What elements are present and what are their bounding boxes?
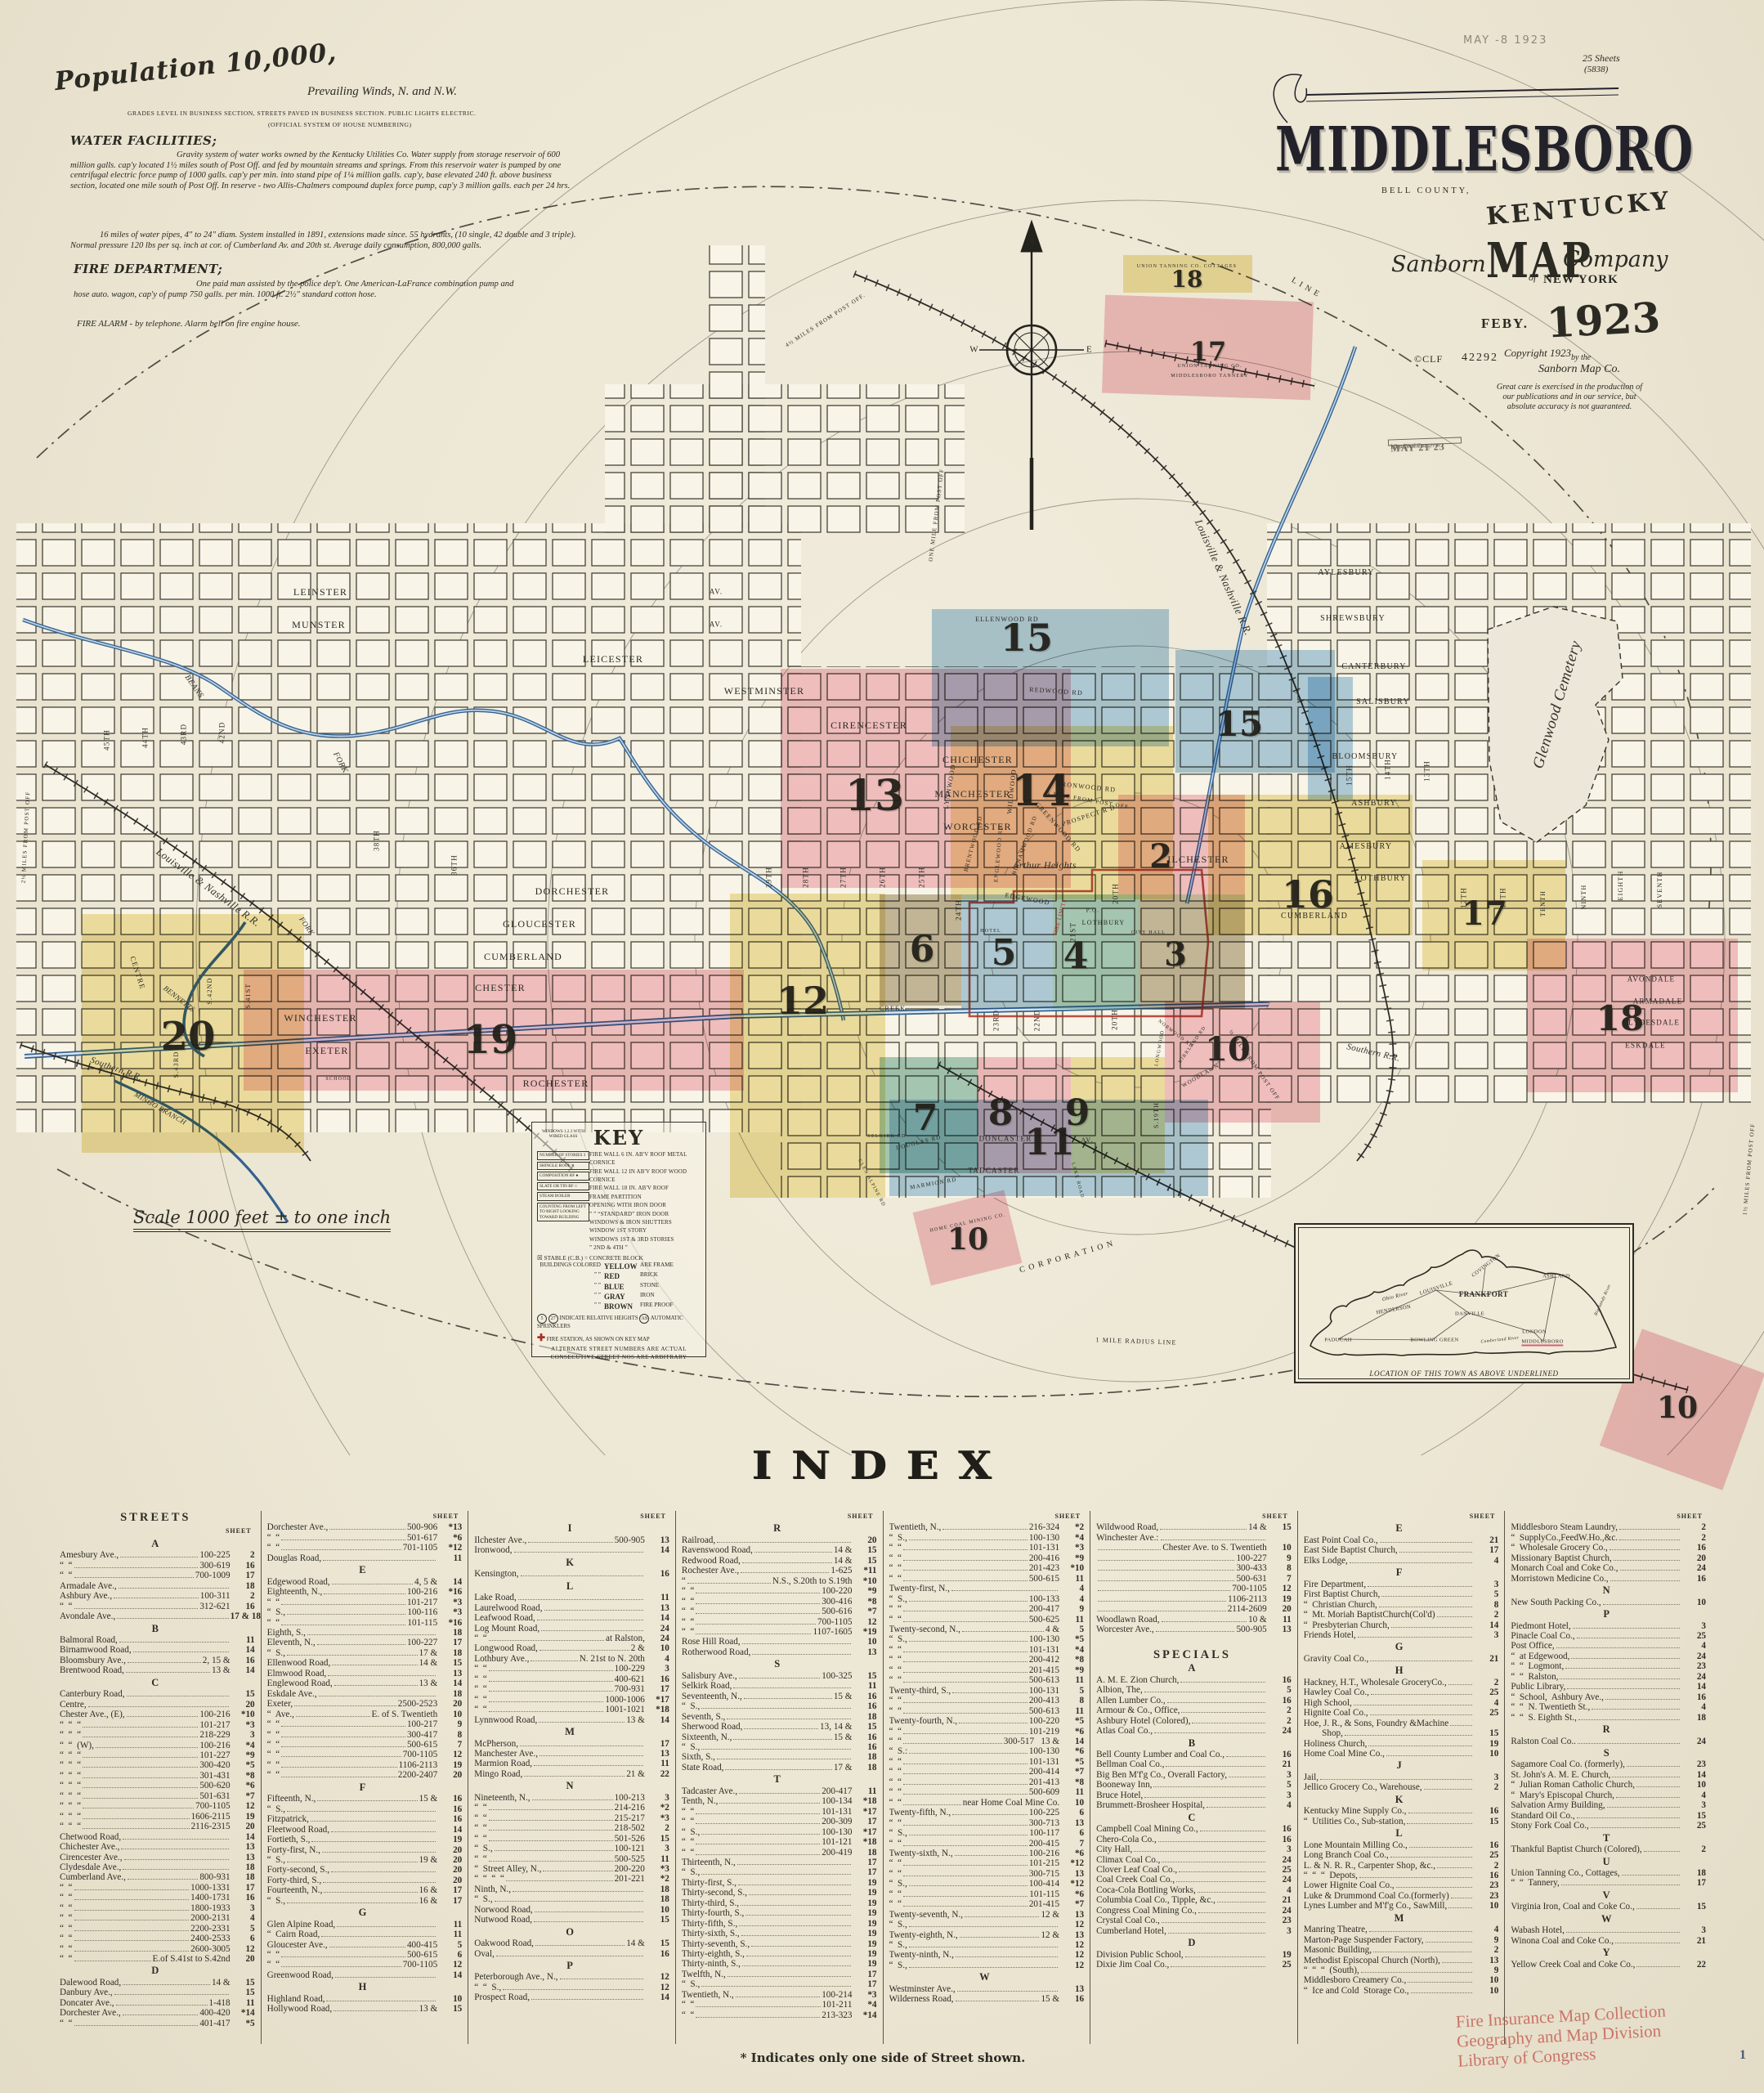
leader-dots: [903, 1652, 1028, 1652]
leader-dots: [903, 1682, 1028, 1683]
index-row: “ S., 100-130 *5: [889, 1634, 1085, 1644]
leader-dots: [532, 1799, 613, 1800]
leader-dots: [1156, 1631, 1235, 1632]
leader-dots: [281, 1549, 401, 1550]
key-line: OPENING WITH IRON DOOR: [589, 1202, 701, 1210]
index-row: “ “ 500-616 *7: [682, 1607, 877, 1616]
leader-dots: [1198, 1892, 1265, 1893]
leader-dots: [1350, 1562, 1473, 1563]
index-row: “ S., 18: [474, 1894, 669, 1904]
index-row: East Side Baptist Church, 17: [1304, 1545, 1499, 1555]
index-row: Yellow Creek Coal and Coke Co., 22: [1511, 1960, 1706, 1970]
leader-dots: [696, 1593, 820, 1593]
leader-dots: [518, 1599, 643, 1600]
water-facilities-body: Gravity system of water works owned by t…: [70, 150, 577, 191]
index-row: D: [60, 1965, 255, 1976]
leader-dots: [1345, 1735, 1472, 1736]
index-column-rows: SHEET I Ilchester Ave., 500-905: [474, 1511, 669, 2003]
leader-dots: [1411, 1992, 1473, 1993]
fire-station-cross-icon: ✚: [537, 1332, 545, 1343]
leader-dots: [1620, 1570, 1681, 1571]
leader-dots: [1622, 1875, 1680, 1876]
leader-dots: [741, 1935, 851, 1936]
key-line: ” 2ND & 4TH ”: [589, 1244, 701, 1253]
leader-dots: [119, 1588, 229, 1589]
leader-dots: [1371, 1694, 1472, 1695]
grades-note: GRADES LEVEL IN BUSINESS SECTION, STREET…: [128, 110, 476, 117]
index-column-rows: SHEET Wildwood Road, 14 & 15 Winchester …: [1096, 1511, 1292, 1970]
index-column-rows: SHEET R Railroad, 20: [682, 1511, 877, 2020]
inset-city-label: DANVILLE: [1455, 1311, 1484, 1317]
index-row: Thirty-first, S., 19: [682, 1878, 877, 1888]
leader-dots: [909, 1753, 1028, 1754]
leader-dots: [1614, 1560, 1680, 1561]
fire-station-label: FIRE STATION, AS SHOWN ON KEY MAP: [547, 1337, 650, 1342]
leader-dots: [1592, 1709, 1680, 1710]
leader-dots: [754, 1552, 832, 1553]
index-row: 700-1105 12: [1096, 1584, 1292, 1593]
leader-dots: [1381, 1596, 1472, 1597]
index-row: “ “ 2000-2131 4: [60, 1913, 255, 1923]
index-row: “ “ at Ralston, 24: [474, 1634, 669, 1643]
index-row: A: [1096, 1663, 1292, 1674]
leader-dots: [489, 1820, 613, 1821]
sheet-page-number: 1: [1739, 2048, 1746, 2063]
index-row: Exeter, 2500-2523 20: [267, 1699, 463, 1709]
index-row: Luke & Drummond Coal Co.(formerly) 23: [1304, 1891, 1499, 1901]
leader-dots: [749, 1894, 850, 1895]
index-row: “ Street Alley, N., 200-220 *3: [474, 1864, 669, 1874]
index-row: Coca-Cola Bottling Works, 4: [1096, 1885, 1292, 1895]
index-row: Coal Creek Coal Co., 24: [1096, 1875, 1292, 1885]
index-row: “ “ 1000-1331 17: [60, 1883, 255, 1893]
index-row: Manchester Ave., 13: [474, 1749, 669, 1759]
leader-dots: [744, 1728, 818, 1729]
index-row: “ “ 215-217 *3: [474, 1813, 669, 1823]
index-row: Fortieth, S., 19: [267, 1835, 463, 1844]
leader-dots: [1158, 1841, 1265, 1842]
index-row: “ “ 500-615 7: [267, 1740, 463, 1750]
leader-dots: [1615, 1943, 1680, 1943]
district-sheet-number: 14: [1012, 770, 1071, 813]
leader-dots: [696, 2017, 820, 2018]
index-row: Lower Hignite Coal Co., 23: [1304, 1880, 1499, 1890]
key-line: FIRE WALL 12 IN AB'V ROOF WOOD CORNICE: [589, 1168, 701, 1185]
leader-dots: [539, 1650, 629, 1651]
index-row: City Hall, 3: [1096, 1844, 1292, 1854]
leader-dots: [296, 1716, 370, 1717]
leader-dots: [503, 1989, 643, 1990]
index-row: Congress Coal Mining Co., 24: [1096, 1906, 1292, 1916]
index-row: Gloucester Ave., 400-415 5: [267, 1940, 463, 1950]
index-row: “ “ 2600-3005 12: [60, 1944, 255, 1954]
index-row: Twenty-ninth, N., 12: [889, 1950, 1085, 1960]
edition-month: FEBY.: [1481, 316, 1529, 332]
leader-dots: [1636, 1908, 1680, 1909]
leader-dots: [489, 1830, 613, 1831]
leader-dots: [903, 1580, 1028, 1581]
index-row: P: [1511, 1609, 1706, 1620]
index-row: “ “ 501-617 *6: [267, 1533, 463, 1543]
index-row: B: [1096, 1738, 1292, 1749]
index-row: N: [474, 1781, 669, 1791]
leader-dots: [701, 1708, 850, 1709]
leader-dots: [83, 1798, 198, 1799]
index-row: New South Packing Co., 10: [1511, 1598, 1706, 1607]
index-row: Doncater Ave., 1-418 11: [60, 1998, 255, 2008]
index-row: Hollywood Road, 13 & 15: [267, 2004, 463, 2014]
leader-dots: [324, 1892, 417, 1893]
leader-dots: [287, 1614, 405, 1615]
index-row: Peterborough Ave., N., 12: [474, 1972, 669, 1982]
index-column-rows: STREETS SHEET A: [60, 1513, 255, 2028]
leader-dots: [1577, 1638, 1680, 1638]
leader-dots: [1451, 1898, 1473, 1898]
leader-dots: [1198, 1912, 1265, 1913]
index-row: G: [1304, 1642, 1499, 1652]
file-number: 42292: [1462, 352, 1498, 365]
district-sheet-number: 13: [845, 775, 904, 818]
leader-dots: [294, 1705, 396, 1706]
index-row: “ “ 101-115 *6: [889, 1889, 1085, 1899]
leader-dots: [903, 1611, 1028, 1611]
district-sheet-number: 7: [913, 1100, 938, 1136]
index-row: Long Branch Coal Co., 25: [1304, 1850, 1499, 1860]
leader-dots: [489, 1681, 613, 1682]
leader-dots: [539, 1755, 643, 1756]
county-label: BELL COUNTY,: [1381, 186, 1471, 195]
index-column: SHEET Dorchester Ave., 500-906 *13 “ “ 5…: [261, 1511, 468, 2044]
leader-dots: [123, 1839, 228, 1840]
leader-dots: [535, 1945, 625, 1946]
index-row: Oval, 16: [474, 1949, 669, 1959]
leader-dots: [560, 1979, 643, 1979]
index-row: “ S.: 100-130 *6: [889, 1746, 1085, 1756]
leader-dots: [74, 1608, 199, 1609]
index-row: “ S., 17: [682, 1979, 877, 1989]
leader-dots: [903, 1621, 1028, 1622]
index-row: 100-227 9: [1096, 1553, 1292, 1563]
leader-dots: [489, 1809, 613, 1810]
index-row: “ “ N. Twentieth St., 4: [1511, 1702, 1706, 1712]
index-row: “ “ 218-502 2: [474, 1823, 669, 1833]
key-heights-line: 5 27 INDICATE RELATIVE HEIGHTS AS AUTOMA…: [537, 1314, 701, 1329]
key-color-row: ” ” RED BRICK: [537, 1271, 701, 1281]
district-sheet-number: 12: [777, 982, 829, 1020]
leader-dots: [281, 1767, 396, 1768]
index-row: Marmion Road, 11: [474, 1759, 669, 1768]
index-column-rows: SHEET Twentieth, N., 216-324 *2 “ S., 10…: [889, 1511, 1085, 2005]
leader-dots: [909, 1926, 1058, 1927]
index-column-rows: SHEET Dorchester Ave., 500-906 *13 “ “ 5…: [267, 1511, 463, 2015]
leader-dots: [74, 1910, 190, 1911]
leader-dots: [727, 1719, 850, 1719]
index-row: Redwood Road, 14 & 15: [682, 1556, 877, 1566]
key-color-row: ” ” BROWN FIRE PROOF: [537, 1302, 701, 1311]
index-row: Armour & Co., Office, 2: [1096, 1705, 1292, 1715]
leader-dots: [513, 1891, 643, 1892]
leader-dots: [520, 1746, 643, 1746]
index-row: Sherwood Road, 13, 14 & 15: [682, 1722, 877, 1732]
leader-dots: [281, 1966, 401, 1967]
index-row: “ “ “ 1606-2115 19: [60, 1812, 255, 1822]
index-row: “ “ E.of S.41st to S.42nd 20: [60, 1954, 255, 1964]
leader-dots: [745, 1915, 850, 1916]
index-row: Amesbury Ave., 100-225 2: [60, 1550, 255, 1560]
leader-dots: [903, 1702, 1028, 1703]
leader-dots: [83, 1767, 198, 1768]
leader-dots: [1573, 1628, 1680, 1629]
index-row: Cumberland Hotel, 3: [1096, 1926, 1292, 1936]
leader-dots: [1153, 1786, 1265, 1787]
district-sheet-number: 20: [161, 1017, 216, 1056]
scale-note: Scale 1000 feet ± to one inch: [133, 1208, 391, 1232]
index-row: Canterbury Road, 15: [60, 1689, 255, 1699]
leader-dots: [119, 1642, 229, 1643]
leader-dots: [489, 1861, 613, 1862]
leader-dots: [281, 1726, 405, 1727]
index-row: “ S., 17: [682, 1867, 877, 1877]
leader-dots: [281, 1956, 405, 1957]
key-symbol-item: SHINGLE ROOF ✕: [537, 1162, 589, 1171]
index-row: “ S., 100-133 4: [889, 1594, 1085, 1604]
index-row: Thirty-ninth, S., 19: [682, 1959, 877, 1969]
leader-dots: [1437, 1616, 1473, 1617]
leader-dots: [323, 1560, 436, 1561]
index-row: Eleventh, N., 100-227 17: [267, 1638, 463, 1647]
index-row: Dorchester Ave., 500-906 *13: [267, 1522, 463, 1532]
leader-dots: [1390, 1857, 1473, 1858]
index-row: Ninth, N., 18: [474, 1885, 669, 1894]
index-row: “ “ 400-621 16: [474, 1674, 669, 1684]
leader-dots: [909, 1539, 1028, 1540]
index-row: Chester Ave. to S. Twentieth 10: [1096, 1543, 1292, 1553]
index-row: Worcester Ave., 500-905 13: [1096, 1625, 1292, 1634]
index-row: Forty-first, N., 20: [267, 1845, 463, 1855]
index-row: Hackney, H.T., Wholesale GroceryCo., 2: [1304, 1678, 1499, 1687]
index-row: Twentieth, N., 100-214 *3: [682, 1990, 877, 2000]
leader-dots: [719, 1803, 820, 1804]
leader-dots: [751, 1946, 850, 1947]
leader-dots: [701, 1834, 820, 1835]
leader-dots: [1450, 1725, 1472, 1726]
district-sheet-number: 10: [1657, 1393, 1698, 1423]
inset-city-label: PADUCAH: [1324, 1338, 1352, 1343]
leader-dots: [1359, 1877, 1472, 1878]
index-row: Thirty-third, S., 19: [682, 1898, 877, 1908]
index-row: Jellico Grocery Co., Warehouse, 2: [1304, 1782, 1499, 1792]
leader-dots: [1180, 1682, 1265, 1683]
index-row: “ “ 700-1105 12: [682, 1617, 877, 1627]
height-symbol-27: 27: [548, 1314, 558, 1324]
index-row: “ Cairn Road, 11: [267, 1929, 463, 1939]
leader-dots: [733, 1687, 850, 1688]
index-column: SHEET I Ilchester Ave., 500-905: [468, 1511, 675, 2044]
index-row: “ “ 200-417 9: [889, 1604, 1085, 1614]
leader-dots: [1162, 1621, 1247, 1622]
leader-dots: [746, 1956, 851, 1956]
leader-dots: [1407, 1823, 1472, 1824]
leader-dots: [281, 1756, 401, 1757]
index-row: Thirty-second, S., 19: [682, 1888, 877, 1898]
key-stable-line: ☒ STABLE (C.B.) = CONCRETE BLOCK: [537, 1254, 701, 1262]
index-row: Winona Coal and Coke Co., 21: [1511, 1936, 1706, 1946]
leader-dots: [1217, 1902, 1265, 1903]
index-row: “ Utilities Co., Sub-station, 15: [1304, 1817, 1499, 1826]
leader-dots: [952, 1692, 1028, 1693]
index-row: Nineteenth, N., 100-213 3: [474, 1793, 669, 1803]
leader-dots: [281, 1737, 405, 1737]
index-row: Division Public School, 19: [1096, 1950, 1292, 1960]
index-row: SHEET: [474, 1511, 669, 1522]
index-row: Longwood Road, 2 & 10: [474, 1643, 669, 1653]
index-row: “ “ 101-131 *3: [889, 1543, 1085, 1553]
leader-dots: [696, 2006, 820, 2007]
key-fire-station-line: ✚ FIRE STATION, AS SHOWN ON KEY MAP: [537, 1332, 701, 1344]
leader-dots: [74, 1567, 199, 1568]
index-row: Thirty-seventh, S., 19: [682, 1939, 877, 1949]
leader-dots: [742, 1965, 851, 1966]
index-footnote: * Indicates only one side of Street show…: [621, 2050, 1144, 2065]
leader-dots: [909, 1601, 1028, 1602]
index-row: “ “ 300-713 13: [889, 1818, 1085, 1828]
leader-dots: [1361, 1972, 1473, 1973]
index-row: “ “ 2400-2533 6: [60, 1934, 255, 1943]
inset-city-label: BOWLING GREEN: [1410, 1338, 1458, 1343]
index-row: Stony Fork Coal Co., 25: [1511, 1821, 1706, 1831]
index-row: C: [60, 1678, 255, 1688]
index-row: “ S., 17 & 18: [267, 1648, 463, 1658]
leader-dots: [1181, 1712, 1265, 1713]
index-row: “ “ 500-625 11: [889, 1615, 1085, 1625]
leader-dots: [903, 1896, 1028, 1897]
index-row: “ “ Logmont, 23: [1511, 1661, 1706, 1671]
leader-dots: [123, 1984, 210, 1985]
leader-dots: [1160, 1529, 1247, 1530]
index-row: “ “ “ 101-217 *3: [60, 1720, 255, 1730]
index-row: “ Presbyterian Church, 14: [1304, 1620, 1499, 1630]
leader-dots: [956, 1956, 1058, 1957]
index-row: Englewood Road, 13 & 14: [267, 1678, 463, 1688]
leader-dots: [701, 1986, 850, 1987]
leader-dots: [489, 1640, 604, 1641]
leader-dots: [127, 1696, 229, 1696]
index-row: “ Ave., E. of S. Twentieth 10: [267, 1710, 463, 1719]
key-symbol-item: NUMBER OF STORIES 3: [537, 1151, 589, 1160]
leader-dots: [956, 2001, 1040, 2001]
district-sheet-number: 2: [1149, 840, 1172, 873]
leader-dots: [1161, 1539, 1265, 1540]
index-row: Twenty-fifth, N., 100-225 6: [889, 1808, 1085, 1817]
index-row: Piedmont Hotel, 3: [1511, 1621, 1706, 1631]
leader-dots: [535, 1911, 643, 1912]
index-row: Wabash Hotel, 3: [1511, 1925, 1706, 1935]
index-row: A. M. E. Zion Church, 16: [1096, 1675, 1292, 1685]
index-row: “ N.S., S.20th to S.19th *10: [682, 1576, 877, 1586]
index-row: Friends Hotel, 3: [1304, 1630, 1499, 1640]
leader-dots: [126, 1672, 210, 1673]
index-row: “ “ “ Depots, 16: [1304, 1871, 1499, 1880]
leader-dots: [733, 1739, 831, 1740]
district-sheet-number: 10: [947, 1225, 988, 1254]
leader-dots: [1162, 1862, 1265, 1862]
leader-dots: [334, 1685, 418, 1686]
leader-dots: [1610, 1549, 1680, 1550]
index-row: Lone Mountain Milling Co., 16: [1304, 1840, 1499, 1850]
index-row: “ “ 201-415 *9: [889, 1665, 1085, 1675]
index-row: “ “ 200-413 8: [889, 1696, 1085, 1705]
index-row: “ “ 1001-1021 *18: [474, 1705, 669, 1714]
leader-dots: [739, 1793, 820, 1794]
leader-dots: [281, 1625, 405, 1625]
index-row: Twenty-first, N., 4: [889, 1584, 1085, 1593]
index-row: “ “ 201-413 *8: [889, 1777, 1085, 1787]
index-row: “ “ 500-613 11: [889, 1706, 1085, 1716]
leader-dots: [281, 1746, 405, 1747]
index-row: Masonic Building, 2: [1304, 1945, 1499, 1955]
index-row: R: [682, 1523, 877, 1534]
index-row: Booneway Inn, 5: [1096, 1780, 1292, 1790]
index-row: “ “ 1106-2113 19: [267, 1760, 463, 1770]
index-row: “ “ “ 700-1105 12: [60, 1801, 255, 1811]
index-column: SHEET R Railroad, 20: [675, 1511, 883, 2044]
leader-dots: [1424, 1789, 1473, 1790]
leader-dots: [965, 1916, 1039, 1917]
leader-dots: [955, 1855, 1028, 1856]
index-row: “ “ 100-229 3: [474, 1664, 669, 1674]
index-row: “ “ 101-121 *18: [682, 1837, 877, 1847]
copyright-line: Copyright 1923: [1504, 347, 1571, 360]
leader-dots: [83, 1757, 198, 1758]
leader-dots: [952, 1814, 1028, 1815]
key-line: WINDOWS & IRON SHUTTERS: [589, 1219, 701, 1227]
leader-dots: [903, 1865, 1028, 1866]
key-color-row: BUILDINGS COLORED YELLOW ARE FRAME: [537, 1262, 701, 1271]
leader-dots: [1616, 1797, 1680, 1798]
winds-note: Prevailing Winds, N. and N.W.: [307, 85, 457, 99]
heights-label: INDICATE RELATIVE HEIGHTS: [559, 1315, 638, 1321]
index-row: Climax Coal Co., 24: [1096, 1855, 1292, 1865]
index-row: “ “ 700-1105 12: [267, 1960, 463, 1970]
index-row: Kensington, 16: [474, 1569, 669, 1579]
index-row: “ “ 300-619 16: [60, 1561, 255, 1571]
index-row: Middlesboro Steam Laundry, 2: [1511, 1522, 1706, 1532]
leader-dots: [537, 1620, 643, 1620]
index-row: Hignite Coal Co., 25: [1304, 1708, 1499, 1718]
index-row: “ “ 1107-1605 *19: [682, 1627, 877, 1637]
disclaimer: Great care is exercised in the productio…: [1496, 383, 1643, 412]
index-row: Dorchester Ave., 400-420 *14: [60, 2008, 255, 2018]
leader-dots: [127, 1716, 199, 1717]
inset-caption: LOCATION OF THIS TOWN AS ABOVE UNDERLINE…: [1296, 1369, 1632, 1378]
leader-dots: [539, 1722, 625, 1723]
leader-dots: [83, 1828, 189, 1829]
leader-dots: [311, 1821, 436, 1822]
index-row: Ashbury Ave., 100-311 2: [60, 1591, 255, 1601]
index-row: Balmoral Road, 11: [60, 1635, 255, 1645]
key-color-row: ” ” GRAY IRON: [537, 1292, 701, 1302]
index-row: Dixie Jim Coal Co., 25: [1096, 1960, 1292, 1970]
index-row: Twenty-third, S., 100-131 5: [889, 1686, 1085, 1696]
leader-dots: [489, 1711, 604, 1712]
leader-dots: [957, 1991, 1058, 1992]
index-row: East Point Coal Co., 21: [1304, 1535, 1499, 1545]
leader-dots: [1368, 1746, 1472, 1746]
leader-dots: [329, 1947, 405, 1947]
leader-dots: [323, 1882, 436, 1883]
district-sheet-number: 16: [1282, 876, 1334, 913]
index-row: Lake Road, 11: [474, 1593, 669, 1602]
